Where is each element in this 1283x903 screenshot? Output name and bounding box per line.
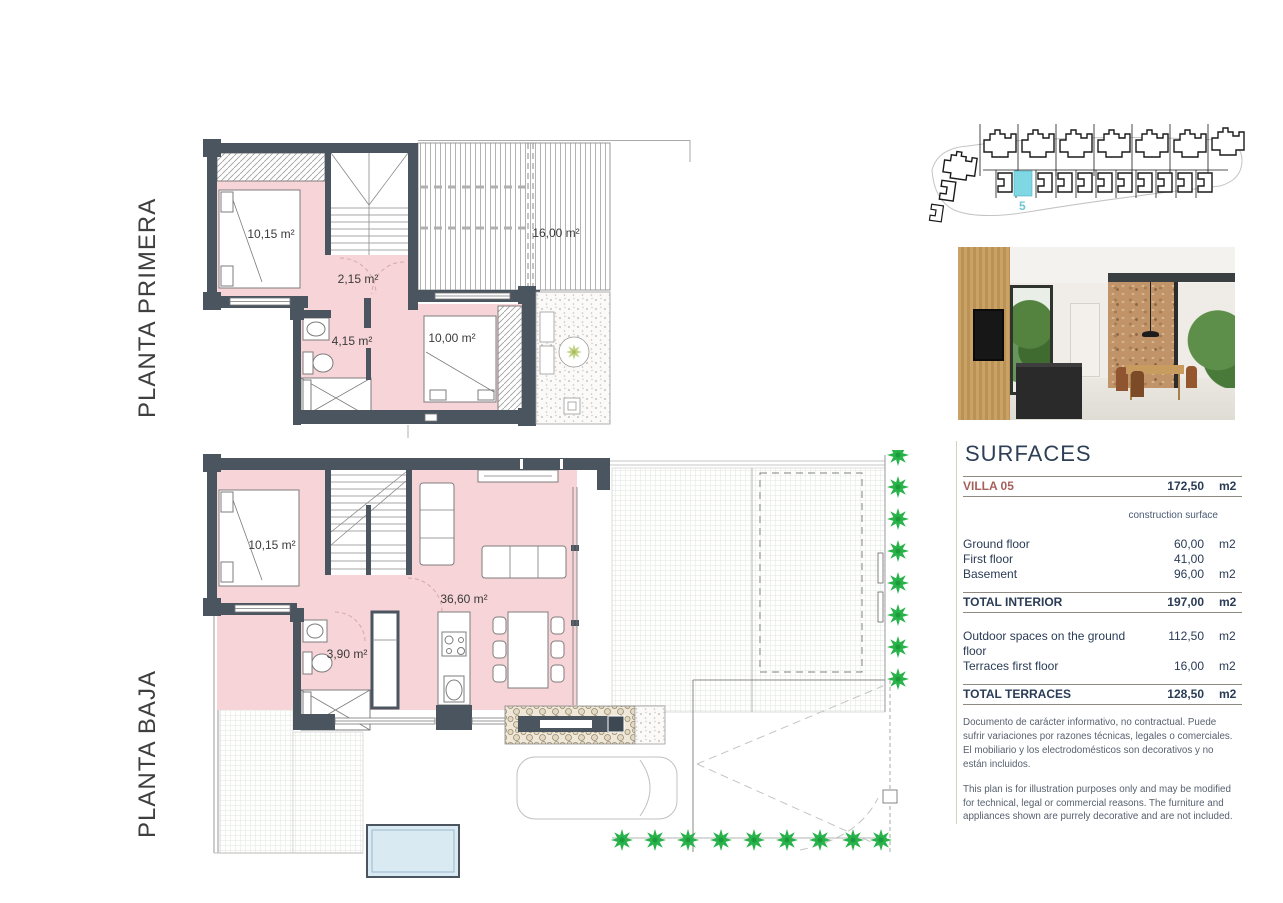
- row-label: Outdoor spaces on the ground floor: [963, 629, 1142, 659]
- disclaimer-spanish: Documento de carácter informativo, no co…: [963, 716, 1242, 772]
- villa-row: VILLA 05 172,50 m2: [963, 476, 1242, 497]
- ff-label-terrace: 16,00 m²: [532, 226, 579, 240]
- gf-pool: [367, 825, 459, 877]
- villa-unit: m2: [1204, 479, 1242, 494]
- table-row: Ground floor 60,00 m2: [963, 537, 1242, 552]
- row-unit: m2: [1204, 537, 1242, 552]
- table-row: Outdoor spaces on the ground floor 112,5…: [963, 629, 1242, 659]
- total-label: TOTAL TERRACES: [963, 687, 1142, 702]
- total-value: 197,00: [1142, 595, 1204, 610]
- ff-label-bedroom1: 10,15 m²: [247, 227, 294, 241]
- gf-planter: [505, 706, 665, 744]
- first-floor-plan: 10,15 m² 2,15 m² 4,15 m² 10,00 m² 16,00 …: [195, 138, 695, 438]
- ff-label-bathroom: 4,15 m²: [332, 334, 373, 348]
- gf-label-living: 36,60 m²: [440, 592, 487, 606]
- disclaimer-english: This plan is for illustration purposes o…: [963, 783, 1242, 825]
- photo-kitchen-island: [1016, 363, 1082, 419]
- total-value: 128,50: [1142, 687, 1204, 702]
- gf-label-bathroom: 3,90 m²: [327, 647, 368, 661]
- villa-label: VILLA 05: [963, 479, 1142, 494]
- photo-ceiling-beam: [1108, 273, 1235, 282]
- villa-value: 172,50: [1142, 479, 1204, 494]
- row-value: 96,00: [1142, 567, 1204, 582]
- total-unit: m2: [1204, 595, 1242, 610]
- gf-label-bedroom: 10,15 m²: [248, 538, 295, 552]
- row-unit: m2: [1204, 659, 1242, 674]
- row-unit: m2: [1204, 629, 1242, 644]
- ff-terrace-deck: [418, 140, 690, 290]
- row-value: 41,00: [1142, 552, 1204, 567]
- surfaces-panel: SURFACES VILLA 05 172,50 m2 construction…: [956, 441, 1242, 824]
- column-header: construction surface: [963, 510, 1242, 521]
- photo-chair: [1186, 366, 1197, 388]
- site-highlighted-villa: [1014, 171, 1032, 196]
- site-plan: 5: [928, 118, 1253, 240]
- total-unit: m2: [1204, 687, 1242, 702]
- table-row: Terraces first floor 16,00 m2: [963, 659, 1242, 674]
- surfaces-title: SURFACES: [965, 441, 1242, 467]
- row-value: 60,00: [1142, 537, 1204, 552]
- ground-floor-plan: 10,15 m² 3,90 m² 36,60 m²: [195, 450, 915, 882]
- total-terraces-row: TOTAL TERRACES 128,50 m2: [963, 684, 1242, 705]
- photo-chair: [1131, 371, 1144, 397]
- row-label: Basement: [963, 567, 1142, 582]
- site-villa-number: 5: [1019, 199, 1026, 213]
- row-value: 16,00: [1142, 659, 1204, 674]
- ff-label-hall: 2,15 m²: [338, 272, 379, 286]
- row-label: Ground floor: [963, 537, 1142, 552]
- total-label: TOTAL INTERIOR: [963, 595, 1142, 610]
- row-unit: m2: [1204, 567, 1242, 582]
- first-floor-title: PLANTA PRIMERA: [134, 226, 162, 418]
- ff-label-bedroom2: 10,00 m²: [428, 331, 475, 345]
- photo-pendant-lamp: [1142, 331, 1159, 337]
- table-row: First floor 41,00: [963, 552, 1242, 567]
- ff-stairs: [331, 153, 408, 255]
- photo-table-leg: [1178, 374, 1180, 400]
- row-value: 112,50: [1142, 629, 1204, 644]
- gf-stairs: [331, 470, 406, 575]
- interior-photo: [958, 247, 1235, 420]
- photo-oven: [973, 309, 1004, 361]
- row-label: First floor: [963, 552, 1142, 567]
- ff-patio: [536, 292, 610, 424]
- brochure-page: PLANTA PRIMERA PLANTA BAJA: [0, 0, 1283, 903]
- total-interior-row: TOTAL INTERIOR 197,00 m2: [963, 592, 1242, 613]
- photo-pendant-wire: [1150, 282, 1151, 332]
- row-label: Terraces first floor: [963, 659, 1142, 674]
- ground-floor-title: PLANTA BAJA: [134, 678, 162, 838]
- table-row: Basement 96,00 m2: [963, 567, 1242, 582]
